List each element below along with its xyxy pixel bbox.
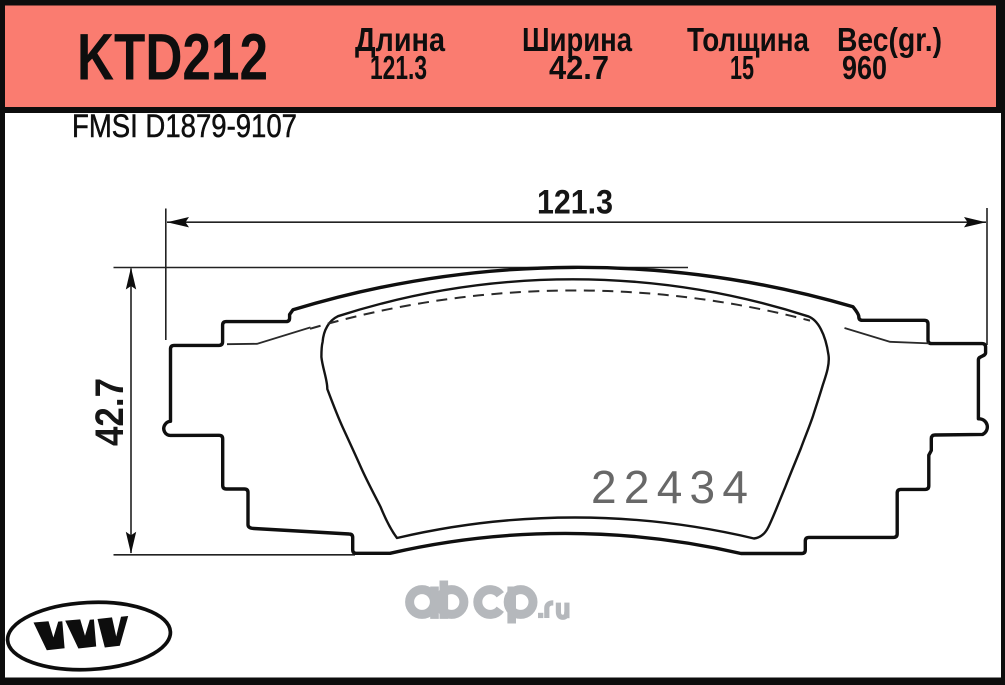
svg-text:22434: 22434 bbox=[591, 461, 748, 513]
svg-text:15: 15 bbox=[730, 49, 754, 86]
svg-text:42.7: 42.7 bbox=[549, 49, 609, 86]
svg-text:121.3: 121.3 bbox=[537, 184, 613, 222]
svg-text:KTD212: KTD212 bbox=[77, 20, 268, 94]
svg-text:42.7: 42.7 bbox=[88, 378, 132, 446]
svg-text:FMSI D1879-9107: FMSI D1879-9107 bbox=[72, 108, 297, 144]
svg-text:121.3: 121.3 bbox=[370, 49, 427, 86]
svg-text:960: 960 bbox=[842, 49, 887, 86]
